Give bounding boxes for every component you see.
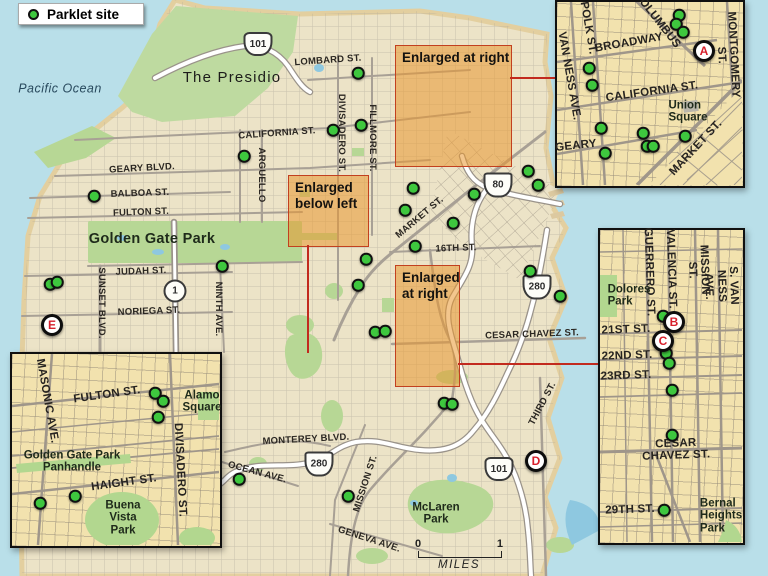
scale-bracket: [418, 551, 502, 558]
enlarged-box-label: Enlarged at right: [402, 270, 460, 301]
highway-shield-280: 280: [305, 452, 334, 477]
parklet-dot: [666, 429, 679, 442]
parklet-legend-icon: [28, 9, 39, 20]
parklet-dot: [595, 122, 608, 135]
parklet-dot: [355, 119, 368, 132]
inset-connector-line: [458, 363, 599, 365]
parklet-dot: [379, 325, 392, 338]
highway-shield-80: 80: [484, 173, 513, 198]
parklet-dot: [522, 165, 535, 178]
parklet-dot: [447, 217, 460, 230]
scale-start: 0: [415, 538, 421, 550]
parklet-dot: [327, 124, 340, 137]
parklet-dot: [352, 279, 365, 292]
highway-shield-280: 280: [523, 275, 552, 300]
parklet-dot: [152, 411, 165, 424]
enlarged-box-enlarged-at-right: Enlarged at right: [395, 45, 512, 167]
parklet-map: Parklet site 0 1 MILES Enlarged at right…: [0, 0, 768, 576]
enlarged-box-label: Enlarged below left: [295, 180, 357, 211]
parklet-dot: [524, 265, 537, 278]
parklet-dot: [69, 490, 82, 503]
inset-downtown-streets: [557, 2, 742, 185]
area-marker-d: D: [525, 450, 547, 472]
enlarged-box-enlarged-at-right: Enlarged at right: [395, 265, 460, 387]
parklet-dot: [532, 179, 545, 192]
parklet-dot: [663, 357, 676, 370]
enlarged-box-enlarged-below-left: Enlarged below left: [288, 175, 369, 247]
dolores-park-patch: [600, 275, 617, 317]
area-marker-a: A: [693, 40, 715, 62]
parklet-dot: [468, 188, 481, 201]
parklet-dot: [409, 240, 422, 253]
parklet-dot: [88, 190, 101, 203]
inset-connector-line: [307, 245, 309, 353]
scale-unit: MILES: [413, 559, 505, 571]
highway-shield-101: 101: [485, 457, 514, 481]
parklet-dot: [360, 253, 373, 266]
scale-end: 1: [497, 538, 503, 550]
parklet-dot: [352, 67, 365, 80]
parklet-dot: [647, 140, 660, 153]
parklet-dot: [599, 147, 612, 160]
highway-shield-1: 1: [164, 280, 187, 303]
parklet-dot: [586, 79, 599, 92]
inset-connector-line: [510, 77, 556, 79]
parklet-dot: [677, 26, 690, 39]
parklet-dot: [216, 260, 229, 273]
legend-label: Parklet site: [47, 7, 119, 22]
parklet-dot: [51, 276, 64, 289]
parklet-dot: [342, 490, 355, 503]
parklet-dot: [679, 130, 692, 143]
parklet-dot: [399, 204, 412, 217]
parklet-dot: [233, 473, 246, 486]
parklet-dot: [157, 395, 170, 408]
area-marker-c: C: [652, 330, 674, 352]
parklet-dot: [554, 290, 567, 303]
inset-haight-streets: [12, 354, 219, 545]
area-marker-e: E: [41, 314, 63, 336]
parklet-dot: [34, 497, 47, 510]
enlarged-box-label: Enlarged at right: [402, 50, 509, 66]
inset-downtown: [555, 0, 745, 188]
inset-haight: [10, 352, 222, 548]
parklet-dot: [407, 182, 420, 195]
parklet-dot: [666, 384, 679, 397]
parklet-dot: [446, 398, 459, 411]
parklet-dot: [583, 62, 596, 75]
parklet-dot: [658, 504, 671, 517]
legend: Parklet site: [18, 3, 144, 25]
union-square-patch: [682, 100, 698, 113]
parklet-dot: [637, 127, 650, 140]
parklet-dot: [238, 150, 251, 163]
highway-shield-101: 101: [244, 32, 273, 56]
